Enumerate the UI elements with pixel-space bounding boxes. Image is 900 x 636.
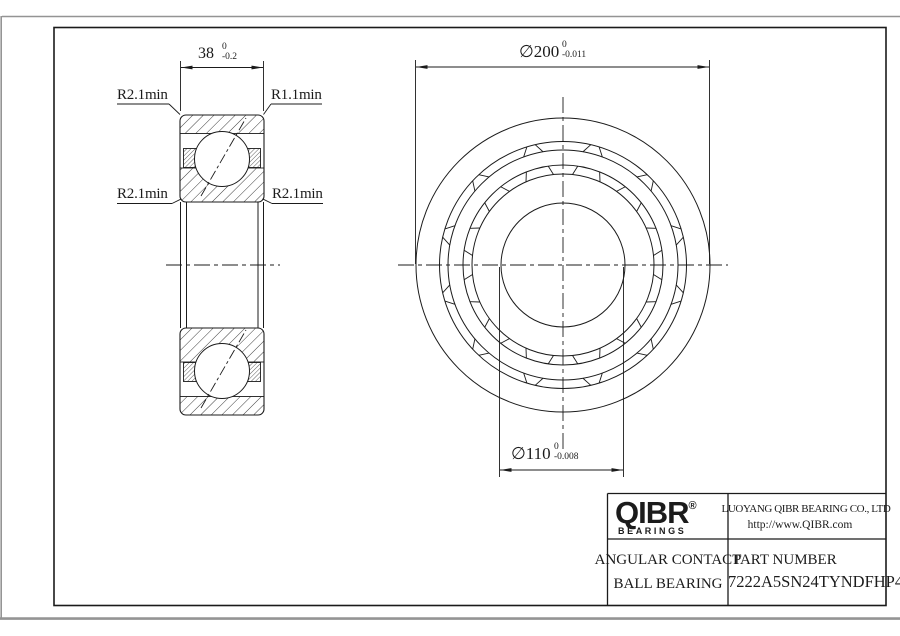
section-view <box>166 115 280 415</box>
radius-label-mid-right: R2.1min <box>272 187 323 202</box>
radius-label-top-right: R1.1min <box>271 88 322 103</box>
company-name: LUOYANG QIBR BEARING CO., LTD <box>722 504 891 515</box>
radius-label-mid-left: R2.1min <box>117 187 168 202</box>
dim-od-tol-lower: -0.011 <box>562 51 586 61</box>
drawing-page: 38 0 -0.2 ∅200 0 -0.011 ∅110 0 -0.008 R2… <box>0 0 900 636</box>
dim-bore-value: ∅110 <box>511 445 551 462</box>
dim-width-value: 38 <box>198 46 214 62</box>
dim-bore-tolerance: 0 -0.008 <box>554 443 579 463</box>
company-website: http://www.QIBR.com <box>748 520 853 532</box>
qibr-logo-subtext: BEARINGS <box>618 527 686 536</box>
dim-od-value: ∅200 <box>519 43 559 60</box>
registered-mark: ® <box>689 500 697 512</box>
product-type-line2: BALL BEARING <box>613 577 722 592</box>
radius-label-top-left: R2.1min <box>117 88 168 103</box>
dim-width-tol-lower: -0.2 <box>222 53 237 63</box>
dim-width-tolerance: 0 -0.2 <box>222 43 237 63</box>
front-view <box>398 97 728 452</box>
part-number-label: PART NUMBER <box>733 553 837 568</box>
product-type-line1: ANGULAR CONTACT <box>595 553 742 568</box>
qibr-logo-text: QIBR <box>615 495 689 530</box>
qibr-logo: QIBR® <box>615 497 697 528</box>
dim-od-tolerance: 0 -0.011 <box>562 41 586 61</box>
part-number-value: 7222A5SN24TYNDFHP4 <box>728 574 884 591</box>
dim-bore-tol-lower: -0.008 <box>554 453 579 463</box>
